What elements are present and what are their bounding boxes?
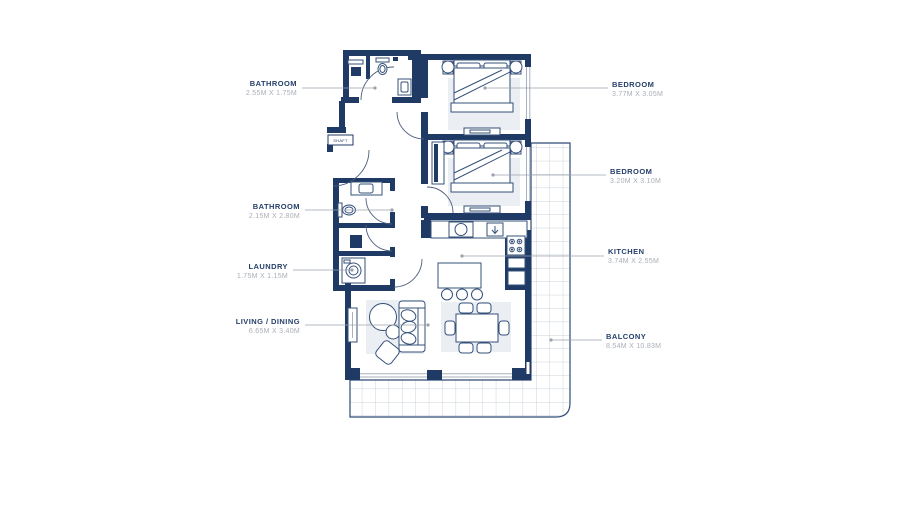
room-label-bathroom-1: BATHROOM 2.55M X 1.75M: [246, 79, 297, 98]
room-name: KITCHEN: [608, 247, 659, 256]
sink-icon: [398, 79, 411, 95]
room-name: LAUNDRY: [237, 262, 288, 271]
shaft-label: SHAFT: [333, 138, 348, 143]
room-label-living-dining: LIVING / DINING 6.65M X 3.40M: [236, 317, 300, 336]
kitchen-island: [438, 263, 483, 300]
room-name: BEDROOM: [612, 80, 663, 89]
stool-icon: [472, 289, 483, 300]
room-dims: 1.75M X 1.15M: [237, 272, 288, 281]
vanity-sink-icon: [351, 182, 382, 195]
chair-icon: [477, 303, 491, 313]
chair-icon: [459, 343, 473, 353]
appliance-icon: [487, 223, 503, 236]
chair-icon: [459, 303, 473, 313]
door-arc: [394, 259, 422, 287]
room-dims: 2.15M X 2.80M: [249, 212, 300, 221]
room-dims: 6.65M X 3.40M: [236, 327, 300, 336]
shower-icon: [348, 60, 363, 76]
dresser-icon: [464, 206, 500, 213]
window: [527, 146, 530, 203]
room-label-laundry: LAUNDRY 1.75M X 1.15M: [237, 262, 288, 281]
chair-icon: [445, 321, 455, 335]
window: [527, 66, 530, 122]
room-dims: 3.77M X 3.05M: [612, 90, 663, 99]
chair-icon: [477, 343, 491, 353]
toilet-icon: [376, 58, 389, 75]
dresser-icon: [464, 128, 500, 135]
stool-icon: [442, 289, 453, 300]
door-arc: [361, 67, 394, 100]
door-arc: [366, 225, 392, 251]
chair-icon: [499, 321, 509, 335]
shaft-box: SHAFT: [328, 135, 353, 145]
stool-icon: [457, 289, 468, 300]
wardrobe-icon: [432, 142, 444, 184]
room-name: BATHROOM: [246, 79, 297, 88]
room-label-bathroom-2: BATHROOM 2.15M X 2.80M: [249, 202, 300, 221]
room-label-bedroom-2: BEDROOM 3.20M X 3.10M: [610, 167, 661, 186]
floor-plan: SHAFT: [0, 0, 900, 518]
balcony-door: [527, 362, 530, 374]
sofa-icon: [399, 301, 425, 352]
stove-icon: [507, 236, 525, 255]
room-name: BALCONY: [606, 332, 661, 341]
door-arc: [397, 112, 424, 139]
bed-icon: [442, 60, 522, 112]
room-dims: 8.54M X 10.83M: [606, 342, 661, 351]
bed-icon: [442, 140, 522, 192]
room-label-kitchen: KITCHEN 3.74M X 2.55M: [608, 247, 659, 266]
room-name: BEDROOM: [610, 167, 661, 176]
room-dims: 3.74M X 2.55M: [608, 257, 659, 266]
door-arc: [366, 198, 392, 224]
room-label-bedroom-1: BEDROOM 3.77M X 3.05M: [612, 80, 663, 99]
room-dims: 3.20M X 3.10M: [610, 177, 661, 186]
floor-plan-canvas: SHAFT BATHROOM 2.55M X 1.75M BEDROOM 3.7…: [0, 0, 900, 518]
kitchen-counter: [431, 221, 527, 238]
fridge-niche: [508, 258, 525, 285]
room-name: BATHROOM: [249, 202, 300, 211]
room-name: LIVING / DINING: [236, 317, 300, 326]
closet-shelf-icon: [350, 235, 362, 248]
room-label-balcony: BALCONY 8.54M X 10.83M: [606, 332, 661, 351]
room-dims: 2.55M X 1.75M: [246, 89, 297, 98]
